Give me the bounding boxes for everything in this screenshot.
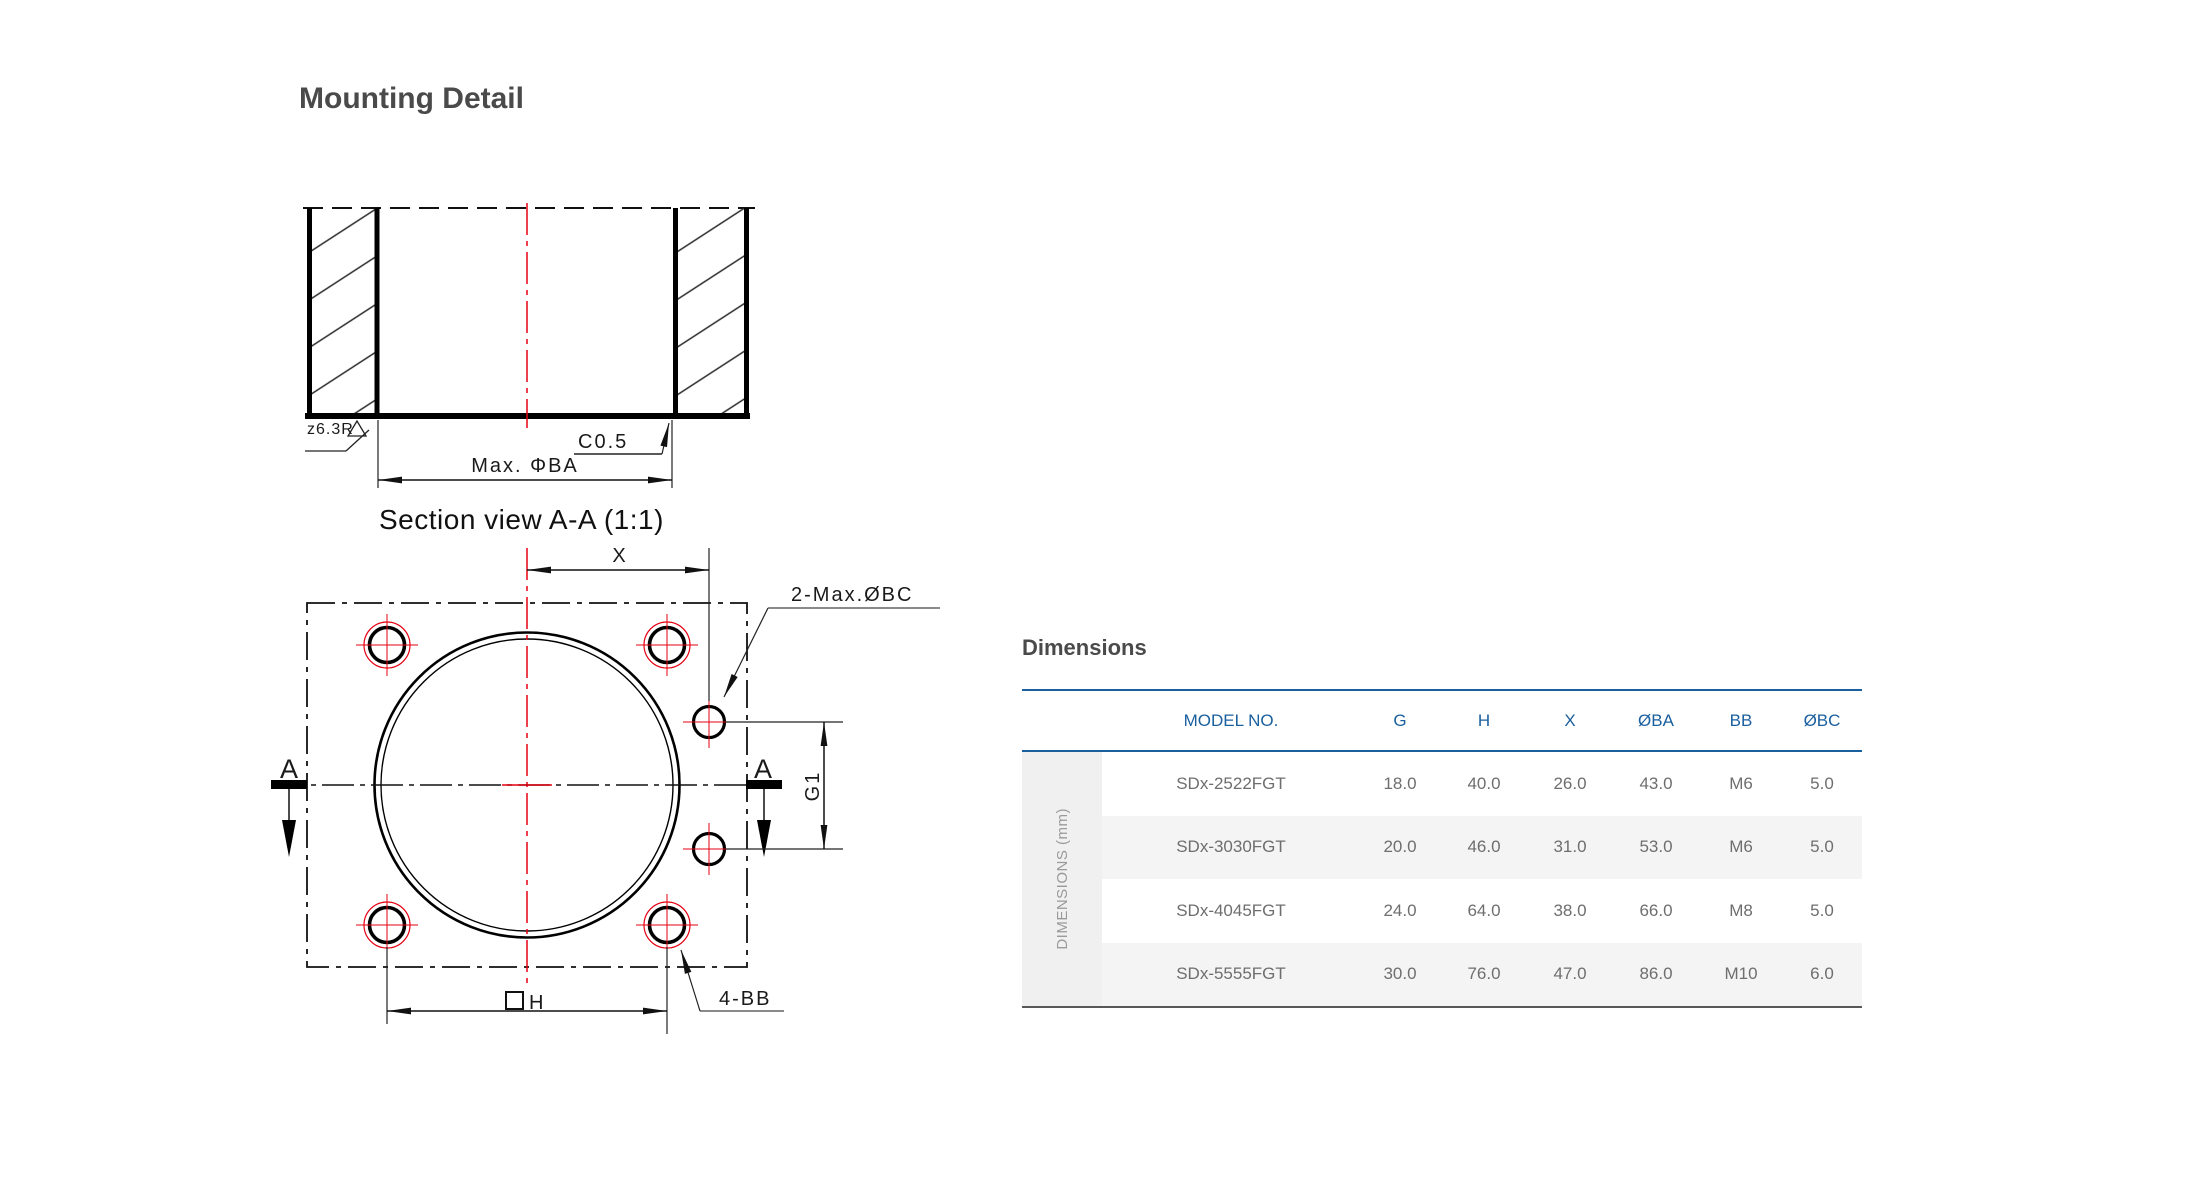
- bb-leader: [681, 950, 700, 1011]
- technical-drawing-svg: z6.3R C0.5 Max. ΦBA Section view A-A (1:…: [250, 130, 970, 1060]
- section-flag-left: [271, 780, 307, 789]
- section-marker-right-label: A: [754, 754, 772, 784]
- g1-dim-label: G1: [802, 771, 824, 802]
- cell-obc: 5.0: [1782, 752, 1862, 816]
- cell-model: SDx-5555FGT: [1102, 943, 1360, 1007]
- dimensions-table: MODEL NO. G H X ØBA BB ØBC DIMENSIONS (m…: [1022, 689, 1862, 1008]
- cell-bb: M6: [1700, 752, 1782, 816]
- bolt-hole-top-left: [356, 614, 418, 676]
- chamfer-label: C0.5: [578, 431, 628, 453]
- col-header-oba: ØBA: [1612, 691, 1700, 752]
- cell-oba: 43.0: [1612, 752, 1700, 816]
- cell-model: SDx-3030FGT: [1102, 816, 1360, 880]
- cell-bb: M8: [1700, 879, 1782, 943]
- cell-x: 31.0: [1528, 816, 1612, 880]
- cell-x: 38.0: [1528, 879, 1612, 943]
- cell-g: 18.0: [1360, 752, 1440, 816]
- section-arrow-left: [282, 820, 296, 857]
- bb-holes-label: 4-BB: [719, 988, 771, 1010]
- datasheet-page: Mounting Detail: [0, 0, 2202, 1177]
- bc-holes-label: 2-Max.ØBC: [791, 584, 913, 606]
- cell-obc: 6.0: [1782, 943, 1862, 1007]
- mounting-detail-drawing: z6.3R C0.5 Max. ΦBA Section view A-A (1:…: [250, 130, 970, 1060]
- col-header-bb: BB: [1700, 691, 1782, 752]
- section-marker-left: A: [271, 754, 307, 857]
- cell-g: 20.0: [1360, 816, 1440, 880]
- table-side-label: DIMENSIONS (mm): [1022, 752, 1102, 1006]
- max-bore-label: Max. ΦBA: [471, 455, 579, 477]
- col-header-h: H: [1440, 691, 1528, 752]
- col-header-obc: ØBC: [1782, 691, 1862, 752]
- surface-finish-label: z6.3R: [307, 421, 354, 438]
- cell-model: SDx-4045FGT: [1102, 879, 1360, 943]
- section-arrow-right: [757, 820, 771, 857]
- cell-oba: 86.0: [1612, 943, 1700, 1007]
- cell-obc: 5.0: [1782, 879, 1862, 943]
- cell-h: 46.0: [1440, 816, 1528, 880]
- cell-oba: 66.0: [1612, 879, 1700, 943]
- cell-bb: M10: [1700, 943, 1782, 1007]
- bolt-hole-bottom-right: [636, 894, 698, 956]
- section-flag-right: [746, 780, 782, 789]
- cell-oba: 53.0: [1612, 816, 1700, 880]
- right-wall-hatch: [675, 208, 746, 415]
- plan-view: X 2-Max.ØBC A A: [271, 545, 940, 1034]
- header-spacer: [1022, 691, 1102, 752]
- section-view: z6.3R C0.5 Max. ΦBA Section view A-A (1:…: [303, 203, 755, 535]
- bolt-hole-bottom-left: [356, 894, 418, 956]
- cell-g: 24.0: [1360, 879, 1440, 943]
- square-symbol-icon: [506, 992, 523, 1009]
- cell-obc: 5.0: [1782, 816, 1862, 880]
- section-view-caption: Section view A-A (1:1): [379, 504, 664, 535]
- cell-h: 40.0: [1440, 752, 1528, 816]
- page-title: Mounting Detail: [299, 82, 524, 116]
- chamfer-leader: [662, 423, 669, 454]
- cell-g: 30.0: [1360, 943, 1440, 1007]
- cell-model: SDx-2522FGT: [1102, 752, 1360, 816]
- cell-x: 47.0: [1528, 943, 1612, 1007]
- cell-bb: M6: [1700, 816, 1782, 880]
- dimensions-heading: Dimensions: [1022, 635, 1147, 661]
- col-header-x: X: [1528, 691, 1612, 752]
- left-wall-hatch: [309, 208, 377, 415]
- table-side-label-text: DIMENSIONS (mm): [1054, 808, 1071, 950]
- cell-x: 26.0: [1528, 752, 1612, 816]
- cell-h: 76.0: [1440, 943, 1528, 1007]
- col-header-model: MODEL NO.: [1102, 691, 1360, 752]
- cell-h: 64.0: [1440, 879, 1528, 943]
- col-header-g: G: [1360, 691, 1440, 752]
- x-dim-label: X: [612, 545, 627, 567]
- square-h-label: H: [529, 992, 545, 1014]
- bc-leader: [724, 608, 768, 697]
- section-marker-right: A: [746, 754, 782, 857]
- bolt-hole-top-right: [636, 614, 698, 676]
- section-marker-left-label: A: [280, 754, 298, 784]
